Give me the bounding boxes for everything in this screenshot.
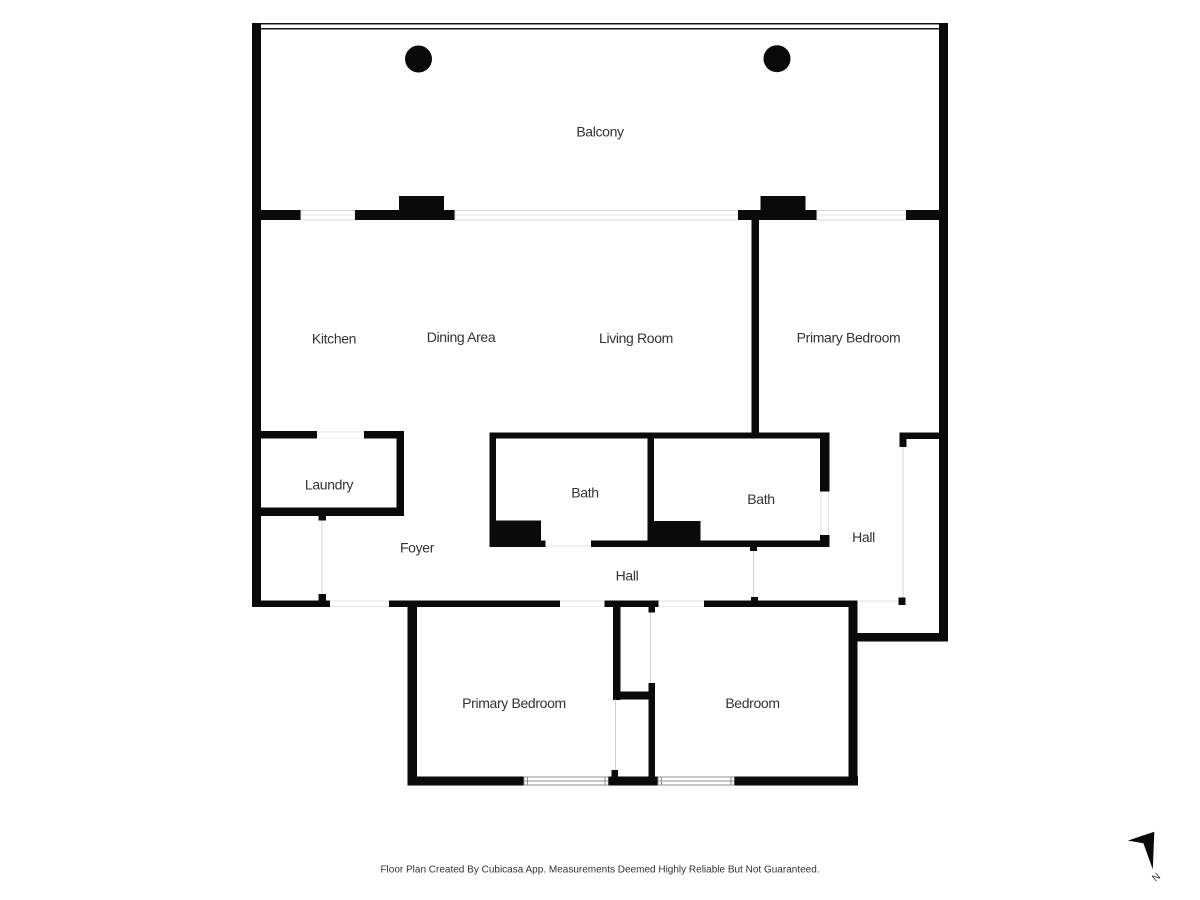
svg-text:Balcony: Balcony: [576, 124, 624, 140]
svg-text:Hall: Hall: [852, 529, 875, 545]
svg-text:N: N: [1150, 871, 1163, 884]
svg-text:Laundry: Laundry: [305, 477, 353, 493]
svg-text:Bath: Bath: [571, 485, 598, 501]
svg-text:Foyer: Foyer: [400, 540, 435, 556]
svg-text:Floor Plan Created By Cubicasa: Floor Plan Created By Cubicasa App. Meas…: [380, 865, 819, 876]
svg-text:Kitchen: Kitchen: [312, 331, 356, 347]
svg-text:Bath: Bath: [747, 491, 774, 507]
svg-text:Primary Bedroom: Primary Bedroom: [462, 695, 566, 711]
svg-text:Bedroom: Bedroom: [725, 695, 779, 711]
svg-text:Living Room: Living Room: [599, 330, 673, 346]
svg-text:Hall: Hall: [616, 568, 639, 584]
svg-text:Primary Bedroom: Primary Bedroom: [797, 330, 901, 346]
svg-text:Dining Area: Dining Area: [427, 329, 496, 345]
